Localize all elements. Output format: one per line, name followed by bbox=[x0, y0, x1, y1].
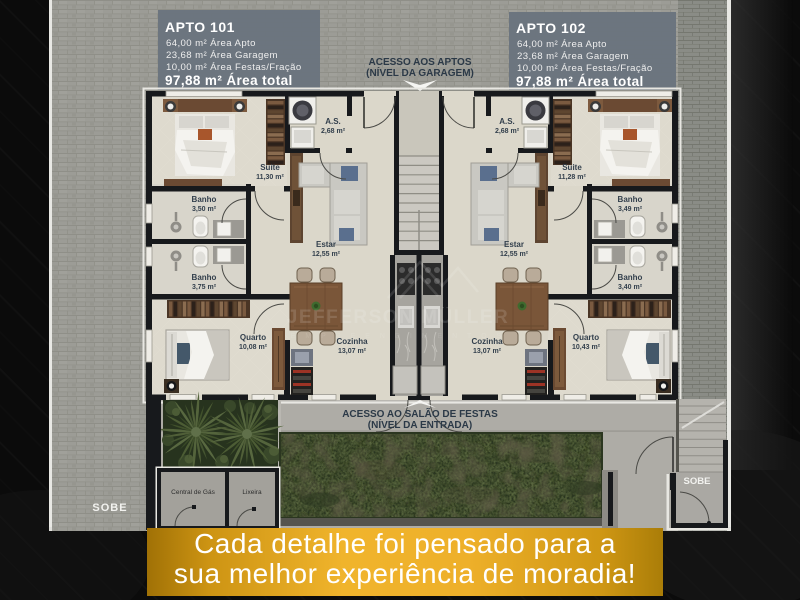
svg-text:ACESSO AO SALÃO DE FESTAS: ACESSO AO SALÃO DE FESTAS bbox=[342, 407, 498, 420]
svg-text:12,55 m²: 12,55 m² bbox=[500, 251, 529, 258]
svg-text:12,55 m²: 12,55 m² bbox=[312, 251, 341, 258]
svg-text:11,28 m²: 11,28 m² bbox=[558, 174, 586, 181]
svg-text:64,00 m² Área Apto: 64,00 m² Área Apto bbox=[166, 38, 256, 49]
svg-text:10,00 m² Área Festas/Fração: 10,00 m² Área Festas/Fração bbox=[166, 62, 302, 73]
svg-text:Quarto: Quarto bbox=[573, 333, 599, 342]
svg-text:APTO 102: APTO 102 bbox=[516, 20, 586, 36]
svg-text:13,07 m²: 13,07 m² bbox=[473, 348, 502, 355]
svg-text:10,00 m² Área Festas/Fração: 10,00 m² Área Festas/Fração bbox=[517, 63, 653, 74]
svg-text:SOBE: SOBE bbox=[92, 502, 127, 514]
svg-text:(NÍVEL DA ENTRADA): (NÍVEL DA ENTRADA) bbox=[368, 418, 472, 431]
svg-text:Banho: Banho bbox=[618, 273, 643, 282]
svg-text:Estar: Estar bbox=[504, 240, 524, 249]
svg-text:97,88 m² Área total: 97,88 m² Área total bbox=[516, 74, 644, 89]
svg-text:11,30 m²: 11,30 m² bbox=[256, 174, 284, 181]
svg-text:2,68 m²: 2,68 m² bbox=[495, 128, 520, 135]
svg-text:13,07 m²: 13,07 m² bbox=[338, 348, 367, 355]
svg-text:23,68 m² Área Garagem: 23,68 m² Área Garagem bbox=[517, 51, 629, 62]
svg-text:3,75 m²: 3,75 m² bbox=[192, 284, 217, 291]
svg-text:3,49 m²: 3,49 m² bbox=[618, 206, 643, 213]
svg-text:E M P R E E N D I M E N T O S: E M P R E E N D I M E N T O S bbox=[291, 333, 505, 340]
svg-text:Suite: Suite bbox=[260, 163, 280, 172]
svg-text:23,68 m² Área Garagem: 23,68 m² Área Garagem bbox=[166, 50, 278, 61]
svg-text:10,08 m²: 10,08 m² bbox=[239, 344, 268, 351]
svg-text:JEFFERSON MÜLLER: JEFFERSON MÜLLER bbox=[287, 307, 509, 328]
svg-text:(NÍVEL DA GARAGEM): (NÍVEL DA GARAGEM) bbox=[366, 66, 474, 79]
svg-text:Central de Gás: Central de Gás bbox=[171, 489, 215, 496]
svg-text:SOBE: SOBE bbox=[684, 476, 711, 487]
svg-text:10,43 m²: 10,43 m² bbox=[572, 344, 601, 351]
svg-text:3,50 m²: 3,50 m² bbox=[192, 206, 217, 213]
svg-text:sua melhor experiência de mora: sua melhor experiência de moradia! bbox=[174, 558, 636, 589]
svg-text:2,68 m²: 2,68 m² bbox=[321, 128, 346, 135]
svg-text:Quarto: Quarto bbox=[240, 333, 266, 342]
svg-text:Estar: Estar bbox=[316, 240, 336, 249]
svg-text:Banho: Banho bbox=[192, 195, 217, 204]
svg-text:97,88 m² Área total: 97,88 m² Área total bbox=[165, 73, 293, 88]
svg-text:APTO 101: APTO 101 bbox=[165, 19, 235, 35]
svg-text:64,00 m² Área Apto: 64,00 m² Área Apto bbox=[517, 39, 607, 50]
svg-text:3,40 m²: 3,40 m² bbox=[618, 284, 643, 291]
svg-text:Suite: Suite bbox=[562, 163, 582, 172]
svg-text:Banho: Banho bbox=[618, 195, 643, 204]
svg-text:Cada detalhe foi pensado para: Cada detalhe foi pensado para a bbox=[194, 528, 616, 559]
svg-text:ACESSO AOS APTOS: ACESSO AOS APTOS bbox=[369, 57, 472, 68]
svg-text:A.S.: A.S. bbox=[499, 117, 515, 126]
svg-text:Banho: Banho bbox=[192, 273, 217, 282]
svg-text:Lixeira: Lixeira bbox=[242, 489, 262, 496]
svg-text:A.S.: A.S. bbox=[325, 117, 341, 126]
